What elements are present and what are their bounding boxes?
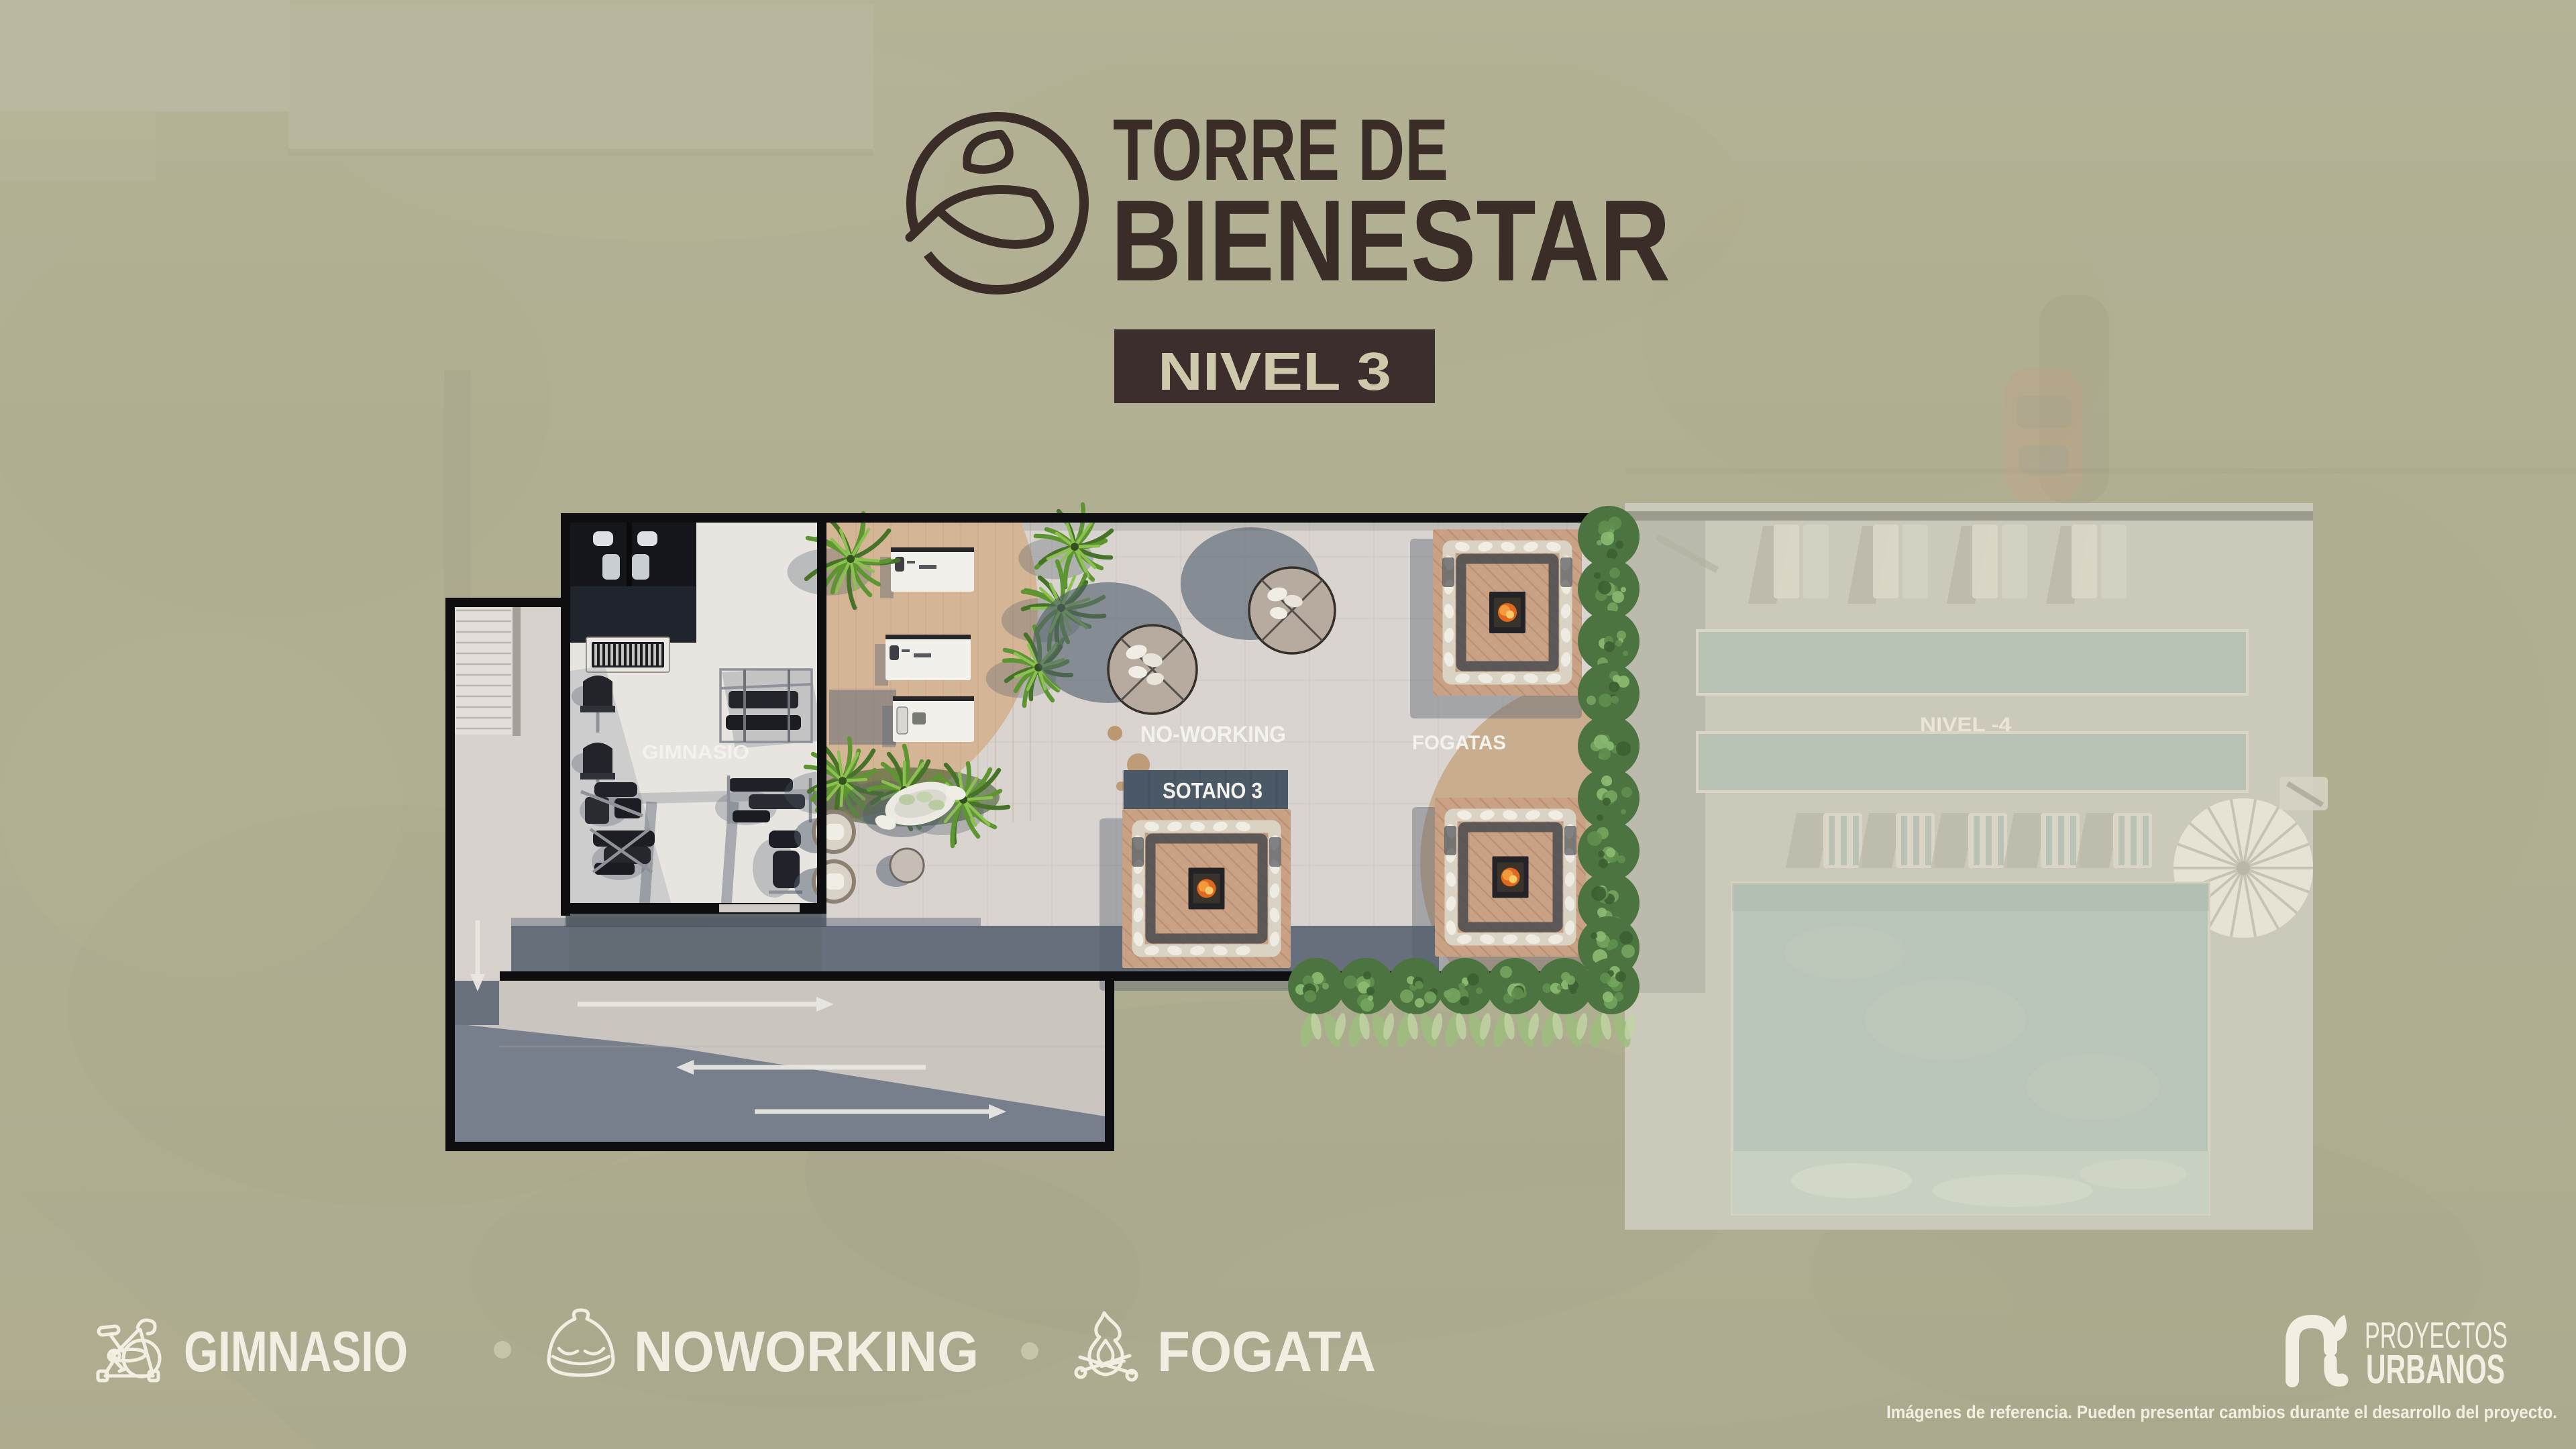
svg-text:URBANOS: URBANOS [2366,1346,2505,1392]
svg-text:NO-WORKING: NO-WORKING [1140,722,1286,747]
svg-text:FOGATAS: FOGATAS [1412,732,1506,754]
svg-text:NOWORKING: NOWORKING [634,1320,979,1384]
svg-text:NIVEL 3: NIVEL 3 [1158,341,1391,401]
svg-text:BIENESTAR: BIENESTAR [1111,176,1670,305]
svg-text:SOTANO 3: SOTANO 3 [1163,778,1263,803]
svg-text:GIMNASIO: GIMNASIO [184,1320,408,1384]
svg-text:Imágenes de referencia. Pueden: Imágenes de referencia. Pueden presentar… [1886,1402,2557,1422]
svg-text:GIMNASIO: GIMNASIO [642,742,749,763]
svg-text:FOGATA: FOGATA [1157,1320,1376,1384]
